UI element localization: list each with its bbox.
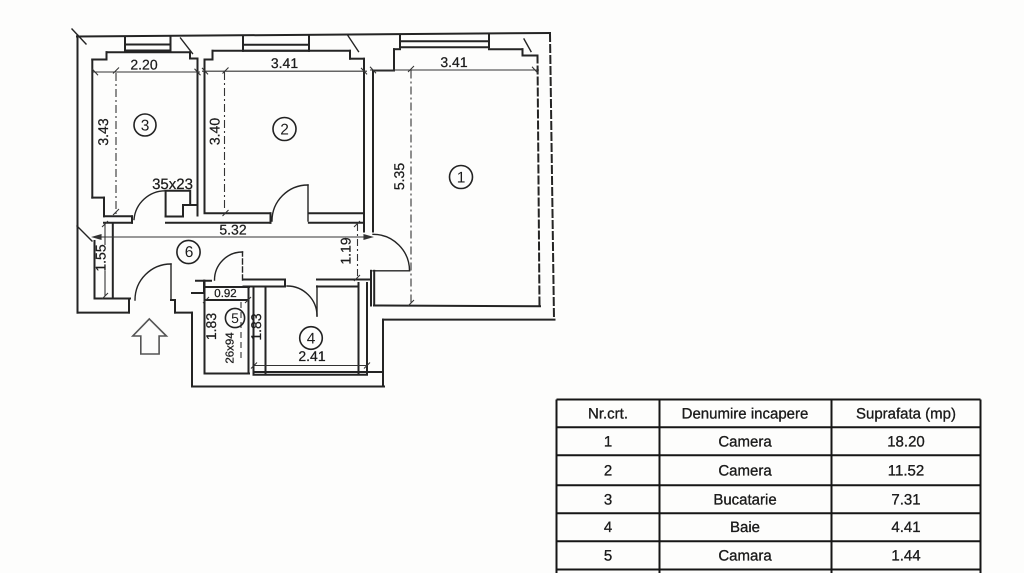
svg-text:4.41: 4.41	[891, 519, 920, 536]
svg-text:1.19: 1.19	[338, 237, 354, 264]
svg-text:1.44: 1.44	[891, 548, 920, 565]
svg-text:Camara: Camara	[718, 548, 772, 565]
svg-text:2: 2	[604, 463, 612, 480]
svg-text:4: 4	[604, 519, 612, 536]
svg-text:1.55: 1.55	[93, 244, 109, 271]
svg-text:2: 2	[280, 122, 289, 139]
svg-text:2.41: 2.41	[298, 348, 325, 364]
svg-text:3: 3	[604, 492, 612, 509]
svg-text:6: 6	[185, 244, 194, 261]
svg-text:5: 5	[231, 310, 239, 326]
svg-text:35x23: 35x23	[152, 176, 193, 193]
svg-text:1: 1	[604, 434, 612, 451]
svg-text:3.40: 3.40	[207, 118, 223, 145]
svg-text:1.83: 1.83	[203, 313, 219, 340]
svg-text:Camera: Camera	[718, 434, 772, 451]
svg-text:3: 3	[141, 118, 150, 135]
svg-text:18.20: 18.20	[887, 434, 925, 451]
svg-text:5.32: 5.32	[219, 222, 246, 238]
svg-text:5.35: 5.35	[391, 163, 407, 190]
svg-text:Bucatarie: Bucatarie	[713, 492, 776, 509]
svg-text:26x94: 26x94	[225, 332, 237, 364]
svg-text:Baie: Baie	[730, 519, 760, 536]
svg-text:1: 1	[457, 170, 466, 187]
svg-text:Camera: Camera	[718, 463, 772, 480]
svg-text:3.41: 3.41	[271, 55, 298, 71]
svg-text:4: 4	[307, 331, 316, 348]
svg-text:0.92: 0.92	[214, 288, 236, 300]
svg-text:Suprafata (mp): Suprafata (mp)	[856, 406, 956, 423]
svg-text:1.83: 1.83	[248, 313, 264, 340]
svg-text:Denumire incapere: Denumire incapere	[682, 406, 809, 423]
svg-text:7.31: 7.31	[891, 492, 920, 509]
svg-text:3.41: 3.41	[440, 54, 467, 70]
svg-text:3.43: 3.43	[95, 118, 111, 145]
svg-text:11.52: 11.52	[888, 463, 924, 480]
svg-text:2.20: 2.20	[130, 57, 157, 73]
svg-text:5: 5	[604, 548, 612, 565]
svg-text:Nr.crt.: Nr.crt.	[588, 406, 628, 423]
